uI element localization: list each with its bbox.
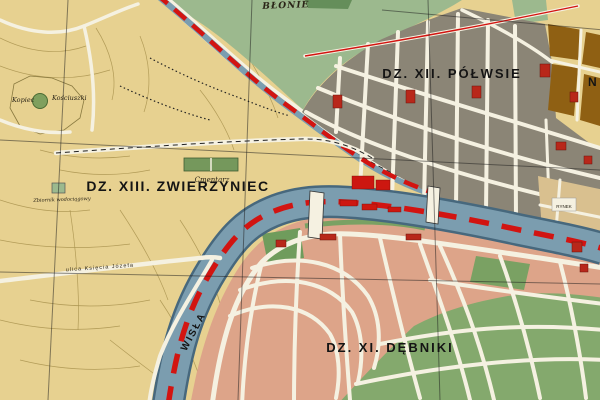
label-kosciuszki: Kościuszki [51,94,87,102]
cemetery-icon [184,158,238,171]
label-debniki: DZ. XI. DĘBNIKI [326,340,454,355]
bridge-east [426,186,440,224]
map-canvas: BŁONIE DZ. XII. PÓŁWSIE DZ. XIII. ZWIERZ… [0,0,600,400]
label-partial-district-name: N [588,75,597,89]
brown-block [548,64,578,116]
label-cmentarz: Cmentarz [195,176,230,184]
city-map: BŁONIE DZ. XII. PÓŁWSIE DZ. XIII. ZWIERZ… [0,0,600,400]
label-polwsie: DZ. XII. PÓŁWSIE [382,66,522,81]
bridge-west [308,191,324,239]
label-kopiec: Kopiec [11,96,35,104]
kosciuszko-mound-icon [33,94,48,109]
label-blonie: BŁONIE [261,0,309,12]
label-zwierzyniec: DZ. XIII. ZWIERZYNIEC [86,178,269,194]
label-rynek: RYNEK [556,204,571,209]
brown-block [548,24,582,60]
meadow-dark-strip [305,0,352,9]
